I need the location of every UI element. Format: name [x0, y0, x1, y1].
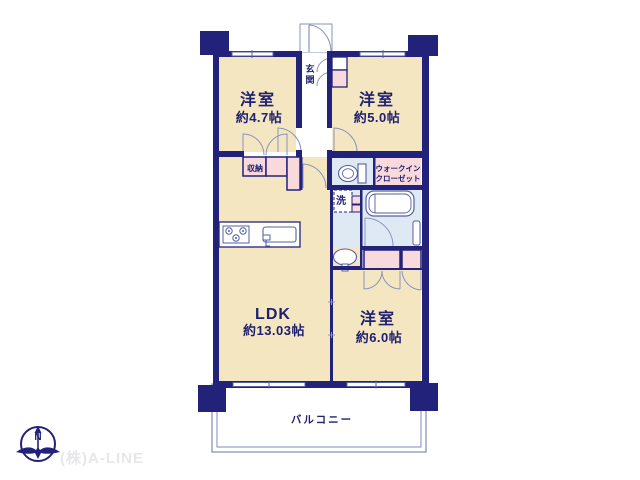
bedroom2-size: 約5.0帖	[354, 110, 401, 125]
kitchen-counter	[219, 222, 300, 247]
storage-label: 収納	[247, 163, 263, 173]
pillar-top-left	[200, 31, 229, 55]
wall-right	[422, 51, 429, 388]
entrance-porch	[300, 24, 332, 53]
wall-ldk-partition	[330, 190, 333, 382]
bedroom3-closet-left	[364, 250, 400, 269]
wall-hall-left-upper	[296, 57, 302, 128]
bedroom3-size: 約6.0帖	[356, 330, 403, 345]
bedroom1-name: 洋室	[240, 90, 276, 109]
company-logo-text: (株)A-LINE	[60, 449, 144, 467]
balcony-area: バルコニー	[212, 384, 426, 452]
pillar-top-right	[408, 35, 438, 56]
laundry-label: 洗	[336, 194, 346, 207]
wall-hall-right-upper	[327, 57, 332, 128]
compass-bird-shape	[16, 447, 60, 459]
bedroom3-name: 洋室	[360, 309, 396, 328]
bedroom2-name: 洋室	[359, 90, 395, 109]
wic-label-line1: ウォークイン	[376, 163, 421, 173]
wic-label-line2: クローゼット	[376, 173, 421, 183]
compass-icon: N	[16, 426, 60, 461]
wall-hall-right-lower	[327, 150, 332, 190]
ldk-size: 約13.03帖	[243, 323, 305, 338]
bedroom1-size: 約4.7帖	[236, 110, 283, 125]
floor-plan-drawing: バルコニー	[0, 0, 640, 480]
entrance-label-char2: 関	[305, 75, 314, 85]
bedroom3-closet-right	[402, 250, 421, 269]
ldk-name: LDK	[255, 306, 291, 323]
bathtub-icon	[366, 191, 414, 216]
wall-bath-bottom	[362, 246, 422, 250]
wall-wet-top	[332, 185, 422, 190]
wall-closet-bottom	[362, 268, 422, 270]
wall-hall-left-stub	[296, 150, 302, 157]
wall-bedroom1-bottom	[219, 151, 244, 157]
balcony-label: バルコニー	[291, 414, 353, 426]
storage-closet2	[266, 157, 287, 176]
wall-bedroom2-bottom	[332, 151, 422, 158]
toilet-icon	[339, 164, 367, 183]
pillar-bottom-right	[410, 383, 438, 411]
wall-closet-divider	[400, 250, 402, 269]
pillar-bottom-left	[198, 385, 226, 412]
wall-left	[213, 51, 219, 388]
shoe-cabinet-lower	[332, 70, 347, 87]
bath-counter-icon	[413, 221, 420, 245]
shoe-cabinet-upper	[332, 57, 347, 70]
wall-wash-bath	[360, 190, 363, 268]
ldk-floor	[218, 157, 330, 382]
entrance-label-char1: 玄	[305, 63, 314, 74]
hall-closet-strip	[287, 157, 300, 190]
stove-icon	[223, 226, 249, 243]
floor-plan-page: バルコニー	[0, 0, 640, 480]
wall-hall-left-lower	[300, 157, 303, 190]
wall-washroom-bottom	[332, 266, 362, 270]
